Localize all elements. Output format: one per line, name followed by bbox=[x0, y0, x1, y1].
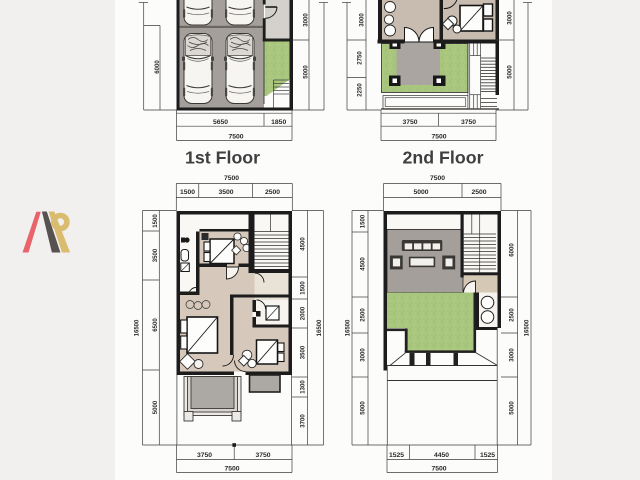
svg-text:16500: 16500 bbox=[346, 319, 352, 336]
svg-text:2500: 2500 bbox=[510, 308, 516, 322]
svg-text:3000: 3000 bbox=[508, 11, 514, 25]
svg-text:4500: 4500 bbox=[301, 237, 307, 251]
svg-text:1850: 1850 bbox=[271, 119, 286, 126]
svg-text:3000: 3000 bbox=[361, 348, 367, 362]
svg-text:6000: 6000 bbox=[155, 60, 161, 74]
svg-text:1300: 1300 bbox=[301, 380, 307, 394]
svg-text:3500: 3500 bbox=[301, 345, 307, 359]
svg-text:1500: 1500 bbox=[301, 281, 307, 295]
svg-text:3500: 3500 bbox=[153, 248, 159, 262]
svg-text:16500: 16500 bbox=[135, 319, 141, 336]
svg-text:7500: 7500 bbox=[224, 175, 239, 182]
svg-text:7500: 7500 bbox=[228, 133, 243, 140]
svg-text:3750: 3750 bbox=[255, 452, 270, 459]
svg-text:1500: 1500 bbox=[153, 214, 159, 228]
svg-text:5000: 5000 bbox=[361, 401, 367, 415]
svg-text:3750: 3750 bbox=[461, 119, 476, 126]
svg-text:4450: 4450 bbox=[434, 452, 449, 459]
svg-text:16500: 16500 bbox=[317, 319, 323, 336]
svg-text:2500: 2500 bbox=[471, 189, 486, 196]
svg-text:3500: 3500 bbox=[218, 189, 233, 196]
svg-text:5650: 5650 bbox=[213, 119, 228, 126]
svg-text:2500: 2500 bbox=[265, 189, 280, 196]
svg-text:7500: 7500 bbox=[431, 133, 446, 140]
svg-text:2750: 2750 bbox=[358, 51, 364, 65]
svg-text:5000: 5000 bbox=[153, 400, 159, 414]
svg-text:5000: 5000 bbox=[413, 189, 428, 196]
svg-text:1525: 1525 bbox=[480, 452, 495, 459]
svg-text:5000: 5000 bbox=[510, 401, 516, 415]
svg-text:2500: 2500 bbox=[361, 308, 367, 322]
svg-text:4500: 4500 bbox=[361, 257, 367, 271]
svg-text:3000: 3000 bbox=[360, 13, 366, 27]
svg-text:7500: 7500 bbox=[430, 175, 445, 182]
svg-text:2nd Floor: 2nd Floor bbox=[403, 148, 484, 168]
svg-text:1500: 1500 bbox=[180, 189, 195, 196]
svg-text:6500: 6500 bbox=[153, 318, 159, 332]
svg-text:16500: 16500 bbox=[525, 319, 531, 336]
svg-text:3700: 3700 bbox=[301, 414, 307, 428]
svg-text:6000: 6000 bbox=[510, 243, 516, 257]
svg-text:2250: 2250 bbox=[358, 83, 364, 97]
svg-text:5000: 5000 bbox=[304, 65, 310, 79]
svg-text:3000: 3000 bbox=[510, 348, 516, 362]
svg-text:5000: 5000 bbox=[508, 65, 514, 79]
svg-text:1st Floor: 1st Floor bbox=[185, 148, 260, 168]
svg-text:3000: 3000 bbox=[304, 13, 310, 27]
svg-text:7500: 7500 bbox=[431, 466, 446, 473]
svg-text:3750: 3750 bbox=[197, 452, 212, 459]
svg-text:2000: 2000 bbox=[301, 306, 307, 320]
svg-text:3750: 3750 bbox=[402, 119, 417, 126]
svg-text:1500: 1500 bbox=[361, 214, 367, 228]
svg-text:1525: 1525 bbox=[389, 452, 404, 459]
svg-text:7500: 7500 bbox=[224, 466, 239, 473]
